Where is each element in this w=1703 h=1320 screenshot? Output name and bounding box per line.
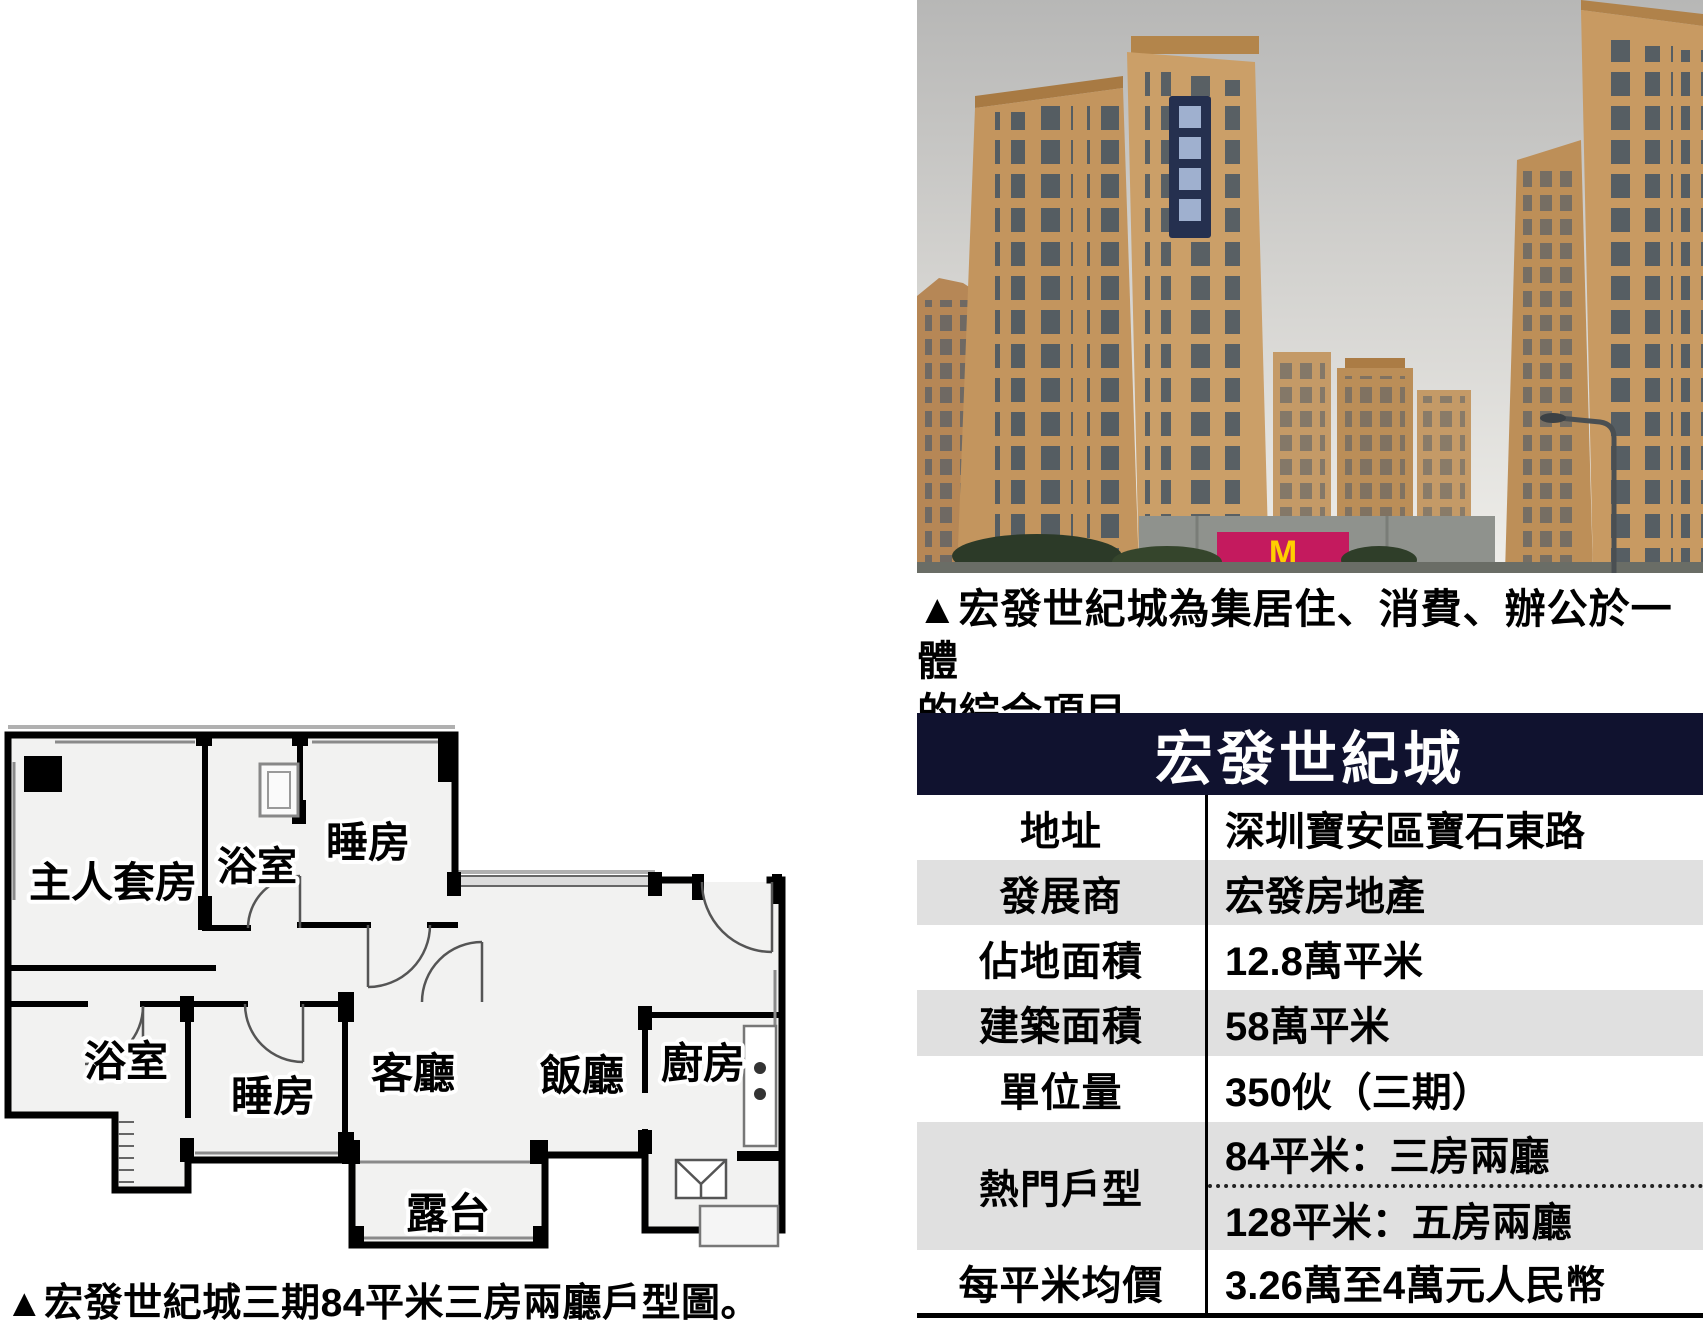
row-label: 建築面積 xyxy=(917,990,1208,1056)
table-row-units: 單位量 350伙（三期） xyxy=(917,1056,1703,1122)
photo-caption-line1: ▲宏發世紀城為集居住、消費、辦公於一體 xyxy=(917,583,1703,687)
lamp-head xyxy=(1540,413,1566,423)
table-row-popular-types: 熱門戶型 84平米：三房兩廳 128平米：五房兩廳 xyxy=(917,1122,1703,1250)
row-label: 每平米均價 xyxy=(917,1250,1208,1313)
room-label-dining: 飯廳 xyxy=(540,1052,624,1099)
room-label-living: 客廳 xyxy=(371,1050,455,1097)
row-label: 熱門戶型 xyxy=(917,1122,1208,1250)
row-value: 58萬平米 xyxy=(1208,990,1703,1056)
floor-plan-caption: ▲宏發世紀城三期84平米三房兩廳戶型圖。 xyxy=(5,1272,760,1320)
floor-plan: 主人套房 浴室 睡房 浴室 睡房 客廳 飯廳 廚房 露台 xyxy=(0,670,790,1255)
row-label: 佔地面積 xyxy=(917,925,1208,990)
row-label: 地址 xyxy=(917,795,1208,860)
room-label-bed-bottom: 睡房 xyxy=(231,1073,315,1120)
table-row-site-area: 佔地面積 12.8萬平米 xyxy=(917,925,1703,990)
room-label-kitchen: 廚房 xyxy=(661,1040,745,1087)
row-value: 深圳寶安區寶石東路 xyxy=(1208,795,1703,860)
room-label-bath-bottom: 浴室 xyxy=(84,1038,168,1085)
room-label-master: 主人套房 xyxy=(29,859,197,906)
row-value-type2: 128平米：五房兩廳 xyxy=(1208,1188,1703,1250)
tower-sign xyxy=(1169,96,1211,238)
room-label-balcony: 露台 xyxy=(406,1190,490,1237)
row-label: 單位量 xyxy=(917,1056,1208,1122)
row-value-stack: 84平米：三房兩廳 128平米：五房兩廳 xyxy=(1208,1122,1703,1250)
row-value: 3.26萬至4萬元人民幣 xyxy=(1208,1250,1703,1313)
row-label: 發展商 xyxy=(917,860,1208,925)
row-value: 350伙（三期） xyxy=(1208,1056,1703,1122)
table-row-developer: 發展商 宏發房地產 xyxy=(917,860,1703,925)
row-value: 12.8萬平米 xyxy=(1208,925,1703,990)
newspaper-clipping: M ▲宏發世紀城為集居住、消費、辦公於一體 的綜合項目。 xyxy=(0,0,1703,1320)
room-label-bed-top: 睡房 xyxy=(326,819,410,866)
table-row-address: 地址 深圳寶安區寶石東路 xyxy=(917,795,1703,860)
table-row-floor-area: 建築面積 58萬平米 xyxy=(917,990,1703,1056)
project-info-table: 宏發世紀城 地址 深圳寶安區寶石東路 發展商 宏發房地產 佔地面積 12.8萬平… xyxy=(917,713,1703,1318)
floor-areas xyxy=(8,735,782,1245)
table-row-avg-price: 每平米均價 3.26萬至4萬元人民幣 xyxy=(917,1250,1703,1313)
row-value: 宏發房地產 xyxy=(1208,860,1703,925)
table-title: 宏發世紀城 xyxy=(917,713,1703,795)
row-value-type1: 84平米：三房兩廳 xyxy=(1208,1122,1703,1188)
room-label-bath-top: 浴室 xyxy=(217,845,297,889)
buildings-photo: M xyxy=(917,0,1703,573)
